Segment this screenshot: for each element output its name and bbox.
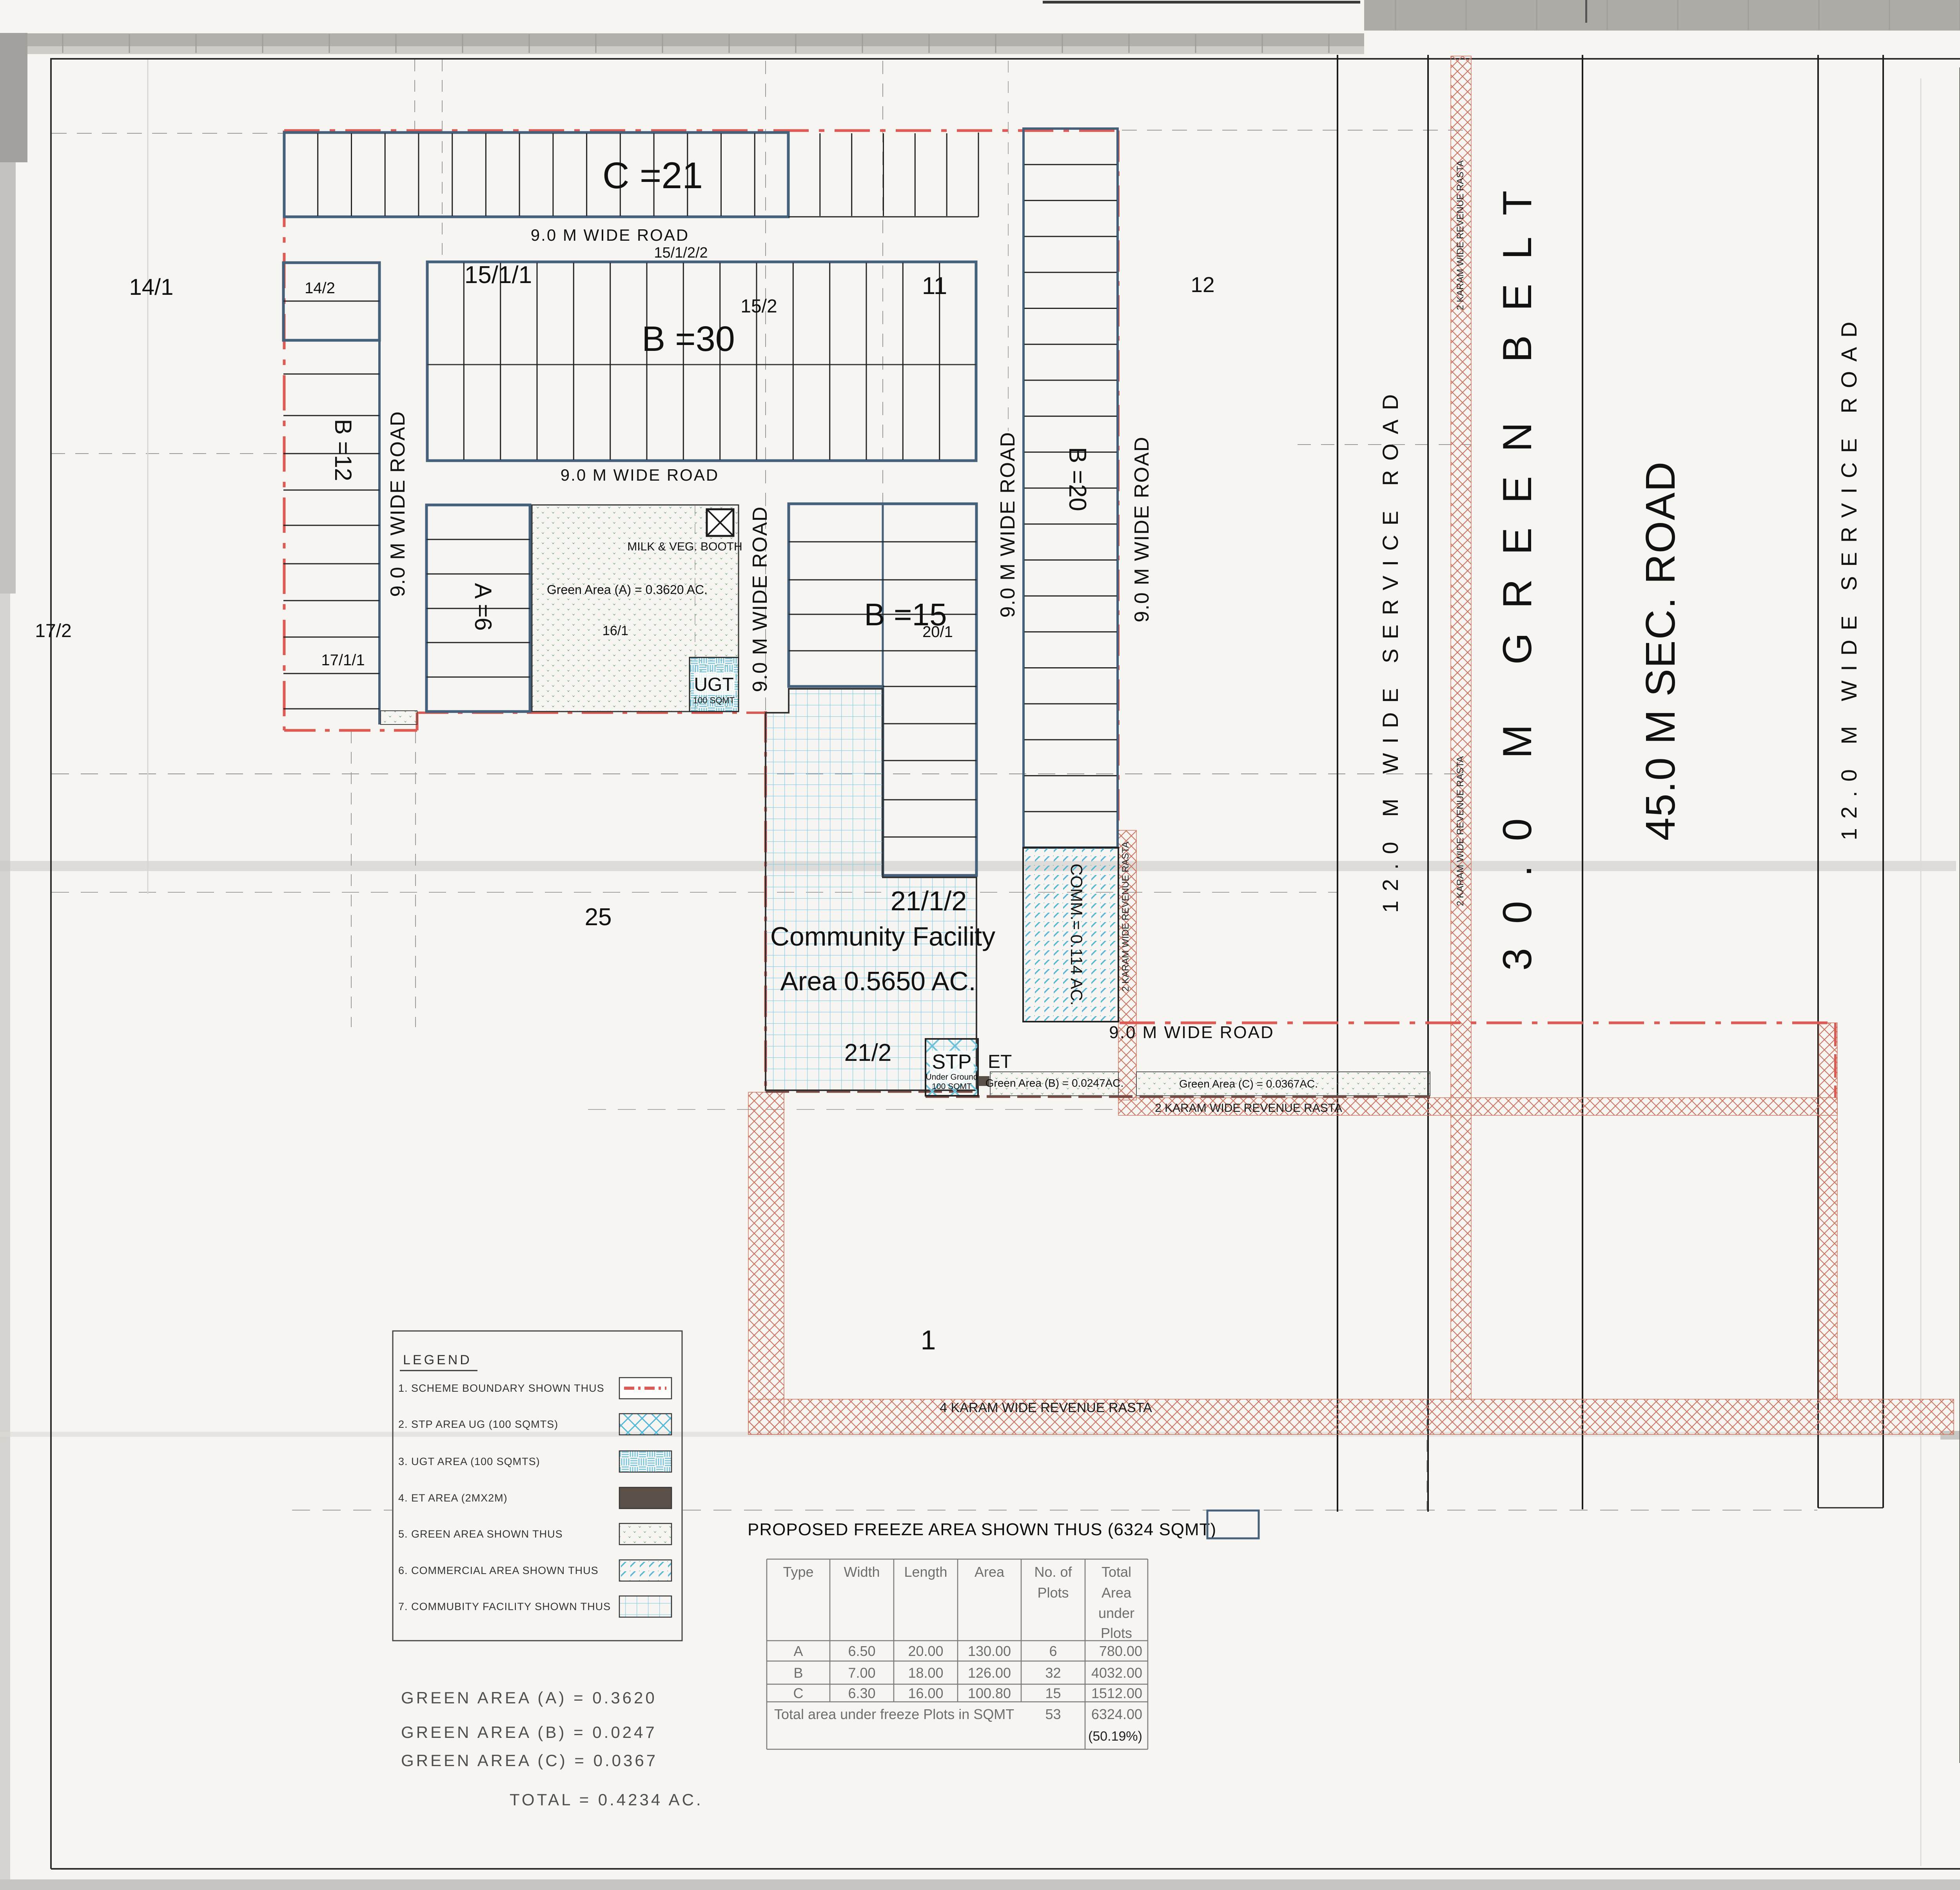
svg-text:C =21: C =21 [603, 155, 703, 196]
svg-text:6: 6 [1049, 1643, 1057, 1659]
svg-text:25: 25 [585, 904, 612, 931]
svg-text:B =12: B =12 [330, 419, 356, 481]
svg-text:30.0 M GREEN BELT: 30.0 M GREEN BELT [1495, 166, 1540, 971]
svg-text:3. UGT AREA (100 SQMTS): 3. UGT AREA (100 SQMTS) [398, 1456, 540, 1467]
svg-text:GREEN AREA (C) = 0.0367: GREEN AREA (C) = 0.0367 [401, 1751, 658, 1770]
svg-text:21/1/2: 21/1/2 [891, 886, 967, 916]
svg-text:UGT: UGT [694, 674, 733, 695]
svg-text:15/2: 15/2 [740, 296, 777, 317]
svg-text:45.0 M SEC. ROAD: 45.0 M SEC. ROAD [1637, 461, 1684, 841]
svg-text:15/1/2/2: 15/1/2/2 [654, 245, 708, 261]
svg-text:130.00: 130.00 [968, 1643, 1011, 1659]
svg-text:9.0 M WIDE ROAD: 9.0 M WIDE ROAD [1109, 1023, 1274, 1042]
svg-text:9.0 M WIDE ROAD: 9.0 M WIDE ROAD [561, 466, 719, 484]
svg-text:Total area under freeze Plots: Total area under freeze Plots in SQMT [774, 1706, 1014, 1722]
svg-text:20/1: 20/1 [922, 623, 953, 641]
svg-text:6.50: 6.50 [848, 1643, 875, 1659]
svg-text:6.30: 6.30 [848, 1685, 875, 1701]
svg-text:4 KARAM WIDE REVENUE RASTA: 4 KARAM WIDE REVENUE RASTA [940, 1400, 1152, 1415]
svg-text:32: 32 [1045, 1665, 1061, 1681]
svg-text:126.00: 126.00 [968, 1665, 1011, 1681]
svg-text:LEGEND: LEGEND [403, 1353, 472, 1367]
svg-text:11: 11 [922, 272, 947, 300]
svg-text:100 SQMT: 100 SQMT [693, 695, 735, 705]
svg-text:7. COMMUBITY FACILITY SHOWN TH: 7. COMMUBITY FACILITY SHOWN THUS [398, 1601, 611, 1612]
svg-text:16/1: 16/1 [603, 623, 628, 638]
svg-text:18.00: 18.00 [908, 1665, 943, 1681]
svg-text:4032.00: 4032.00 [1091, 1665, 1142, 1681]
svg-text:17/2: 17/2 [35, 621, 71, 641]
svg-text:2 KARAM WIDE REVENUE RASTA: 2 KARAM WIDE REVENUE RASTA [1155, 1102, 1342, 1115]
svg-text:6324.00: 6324.00 [1091, 1706, 1142, 1722]
svg-text:Area: Area [975, 1564, 1005, 1580]
svg-text:B =20: B =20 [1064, 447, 1091, 511]
svg-text:Plots: Plots [1037, 1585, 1069, 1601]
svg-text:9.0 M WIDE ROAD: 9.0 M WIDE ROAD [749, 506, 771, 692]
svg-text:9.0 M WIDE ROAD: 9.0 M WIDE ROAD [996, 432, 1019, 618]
svg-text:1512.00: 1512.00 [1091, 1685, 1142, 1701]
svg-text:B =30: B =30 [642, 320, 735, 359]
svg-text:12: 12 [1191, 272, 1214, 297]
svg-text:15/1/1: 15/1/1 [465, 261, 532, 289]
svg-text:21/2: 21/2 [844, 1039, 892, 1066]
svg-text:2 KARAM WIDE REVENUE RASTA: 2 KARAM WIDE REVENUE RASTA [1455, 756, 1466, 906]
svg-text:STP: STP [932, 1051, 971, 1073]
svg-text:COMM.= 0.114 AC.: COMM.= 0.114 AC. [1067, 864, 1086, 1006]
svg-text:1: 1 [921, 1325, 936, 1355]
svg-text:Green Area (A) = 0.3620 AC.: Green Area (A) = 0.3620 AC. [547, 583, 708, 597]
svg-text:Total: Total [1102, 1564, 1131, 1580]
svg-text:14/1: 14/1 [129, 274, 174, 300]
svg-text:20.00: 20.00 [908, 1643, 943, 1659]
svg-text:Under Ground: Under Ground [926, 1073, 978, 1082]
svg-text:MILK & VEG. BOOTH: MILK & VEG. BOOTH [627, 540, 742, 553]
svg-text:12.0 M WIDE SERVICE ROAD: 12.0 M WIDE SERVICE ROAD [1837, 312, 1861, 841]
svg-text:Community Facility: Community Facility [770, 922, 995, 951]
svg-text:under: under [1098, 1605, 1134, 1621]
svg-text:9.0 M WIDE ROAD: 9.0 M WIDE ROAD [1131, 436, 1153, 623]
svg-text:2 KARAM WIDE REVENUE RASTA: 2 KARAM WIDE REVENUE RASTA [1120, 842, 1131, 991]
svg-text:B: B [793, 1665, 803, 1681]
svg-text:ET: ET [988, 1051, 1012, 1072]
svg-text:12.0 M WIDE SERVICE ROAD: 12.0 M WIDE SERVICE ROAD [1378, 385, 1403, 913]
svg-text:Area 0.5650 AC.: Area 0.5650 AC. [780, 966, 976, 996]
svg-text:2. STP AREA UG (100 SQMTS): 2. STP AREA UG (100 SQMTS) [398, 1418, 558, 1430]
svg-text:TOTAL = 0.4234 AC.: TOTAL = 0.4234 AC. [510, 1790, 703, 1809]
svg-text:GREEN AREA (B) = 0.0247: GREEN AREA (B) = 0.0247 [401, 1723, 657, 1741]
svg-text:Area: Area [1102, 1585, 1132, 1601]
svg-text:16.00: 16.00 [908, 1685, 943, 1701]
svg-text:100 SQMT: 100 SQMT [932, 1082, 972, 1091]
svg-text:780.00: 780.00 [1099, 1643, 1142, 1659]
svg-text:2 KARAM WIDE REVENUE RASTA: 2 KARAM WIDE REVENUE RASTA [1455, 160, 1466, 310]
svg-text:Width: Width [844, 1564, 880, 1580]
svg-text:Green Area (C) = 0.0367AC.: Green Area (C) = 0.0367AC. [1179, 1078, 1318, 1090]
svg-text:17/1/1: 17/1/1 [321, 652, 365, 669]
svg-text:9.0 M WIDE ROAD: 9.0 M WIDE ROAD [531, 226, 689, 244]
svg-text:PROPOSED FREEZE AREA SHOWN THU: PROPOSED FREEZE AREA SHOWN THUS (6324 SQ… [748, 1520, 1216, 1539]
svg-text:5. GREEN AREA SHOWN THUS: 5. GREEN AREA SHOWN THUS [398, 1528, 563, 1540]
svg-text:A =6: A =6 [470, 583, 496, 631]
svg-text:C: C [793, 1685, 804, 1701]
svg-text:Length: Length [904, 1564, 947, 1580]
svg-text:6. COMMERCIAL AREA SHOWN THUS: 6. COMMERCIAL AREA SHOWN THUS [398, 1565, 599, 1576]
svg-text:(50.19%): (50.19%) [1088, 1729, 1142, 1744]
svg-text:9.0 M WIDE ROAD: 9.0 M WIDE ROAD [387, 411, 409, 597]
svg-text:Green Area (B) = 0.0247AC.: Green Area (B) = 0.0247AC. [985, 1077, 1124, 1089]
svg-text:4. ET AREA (2MX2M): 4. ET AREA (2MX2M) [398, 1492, 508, 1504]
svg-text:15: 15 [1045, 1685, 1061, 1701]
svg-text:No. of: No. of [1034, 1564, 1072, 1580]
svg-text:A: A [793, 1643, 803, 1659]
svg-text:53: 53 [1045, 1706, 1061, 1722]
svg-text:GREEN AREA (A) = 0.3620: GREEN AREA (A) = 0.3620 [401, 1688, 657, 1707]
svg-text:1. SCHEME BOUNDARY SHOWN THUS: 1. SCHEME BOUNDARY SHOWN THUS [398, 1382, 604, 1394]
svg-text:100.80: 100.80 [968, 1685, 1011, 1701]
svg-text:Plots: Plots [1101, 1625, 1132, 1641]
svg-text:Type: Type [783, 1564, 813, 1580]
svg-text:14/2: 14/2 [305, 280, 335, 297]
svg-text:7.00: 7.00 [848, 1665, 875, 1681]
